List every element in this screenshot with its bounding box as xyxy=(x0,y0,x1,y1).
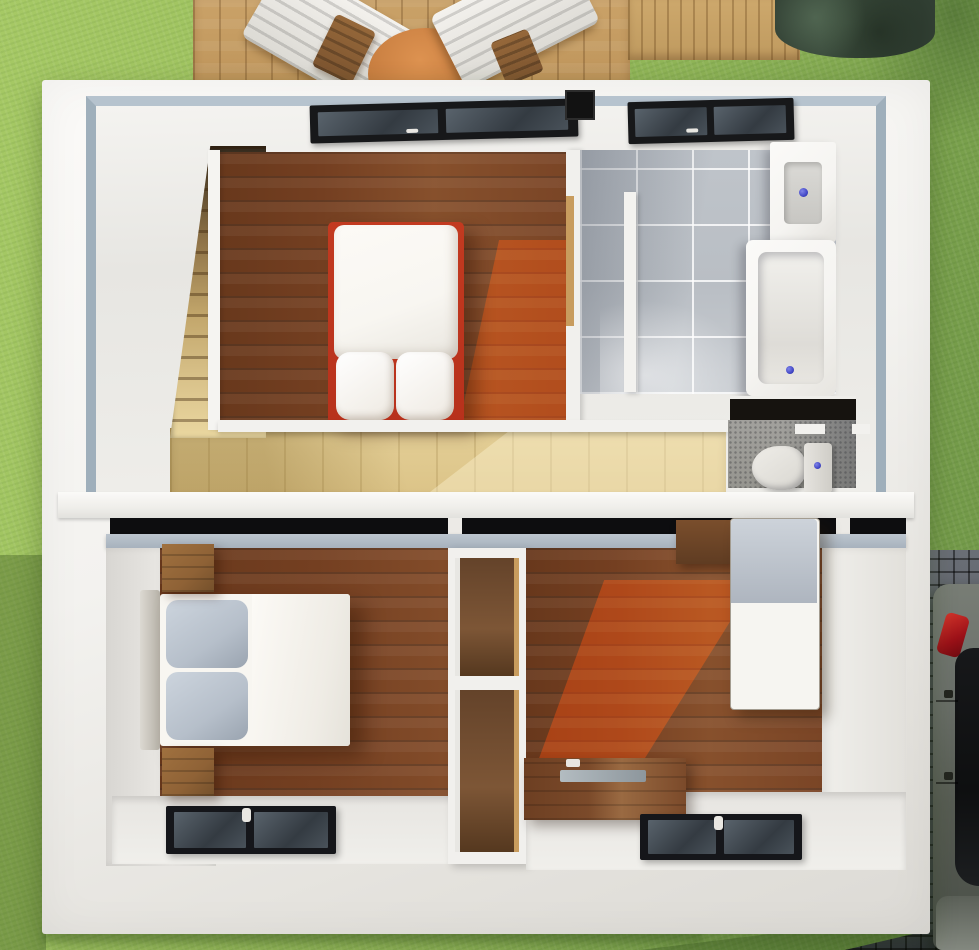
desk xyxy=(524,758,686,820)
desk-item xyxy=(566,759,580,767)
roof-window-pane xyxy=(174,812,246,848)
wall-cabinet xyxy=(676,520,732,564)
glazing-mullion xyxy=(836,518,850,534)
double-bed-duvet xyxy=(252,594,350,746)
roof-window-pane xyxy=(254,812,328,848)
double-bed-pillow-bottom xyxy=(166,672,248,740)
glazing-mullion xyxy=(448,518,462,534)
window-handle xyxy=(714,816,723,830)
double-bed-pillow-top xyxy=(166,600,248,668)
window-handle xyxy=(242,808,251,822)
nightstand-bottom xyxy=(162,748,214,796)
closet-niche-top xyxy=(455,558,519,676)
lower-floor xyxy=(0,0,979,950)
double-bed-headboard xyxy=(140,590,160,750)
single-bed-pillow-section xyxy=(731,519,817,603)
floor-plan-render xyxy=(0,0,979,950)
roof-window-pane xyxy=(724,820,794,854)
roof-window-double-bedroom xyxy=(166,806,336,854)
roof-window-pane xyxy=(648,820,716,854)
roof-window-single-bedroom xyxy=(640,814,802,860)
nightstand-top xyxy=(162,544,214,592)
closet-niche-bottom xyxy=(455,690,519,852)
desk-laptop xyxy=(560,770,646,782)
